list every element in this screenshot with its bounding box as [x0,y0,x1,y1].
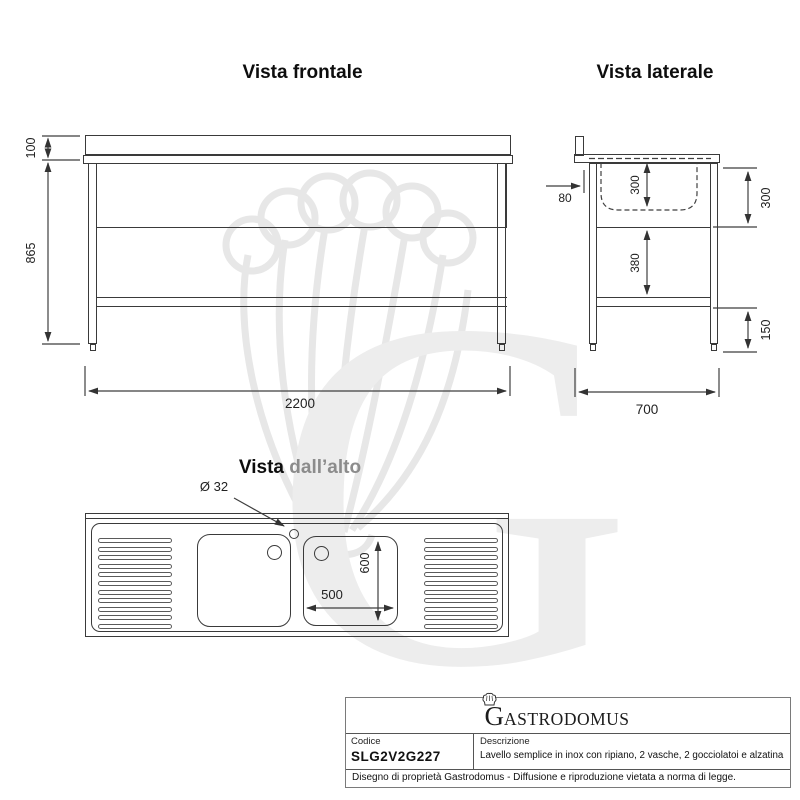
side-bottom-shelf [596,297,711,307]
front-apron-panel [96,163,507,228]
drainboard-groove [98,538,172,543]
right-drain-hole [314,546,329,561]
left-drain-hole [267,545,282,560]
drainboard-groove [424,555,498,560]
side-backsplash [575,136,584,156]
drainboard-groove [98,624,172,629]
top-view-title-suffix: dall’alto [289,457,361,478]
side-dim-upper-label: 300 [759,178,773,218]
drainboard-groove [424,538,498,543]
front-dim-width-label: 2200 [268,397,332,411]
tap-hole [289,529,299,539]
drainboard-groove [424,581,498,586]
drainboard-groove [424,598,498,603]
title-block: GASTRODOMUS Codice SLG2V2G227 Descrizion… [345,697,791,788]
top-dim-bowl-length-label: 600 [358,543,372,583]
code-label: Codice [351,736,473,747]
top-view-title: Vista dall’alto [210,457,390,479]
drainboard-groove [98,547,172,552]
description-cell: Descrizione Lavello semplice in inox con… [474,734,790,769]
drainboard-groove [424,624,498,629]
top-view-title-prefix: Vista [239,457,284,478]
gastrodomus-logo: GASTRODOMUS [484,703,629,730]
code-value: SLG2V2G227 [351,749,473,764]
chef-hat-icon [481,692,498,707]
drainboard-groove [98,572,172,577]
drainboard-groove [98,590,172,595]
front-backsplash [85,135,511,155]
watermark-chef-logo: G [0,0,800,800]
drainboard-groove [424,615,498,620]
left-drainboard-grooves [98,538,172,629]
front-left-foot [90,344,96,351]
drainboard-groove [98,615,172,620]
drainboard-groove [98,598,172,603]
technical-drawing-page: G Vista frontale 100 865 2200 Vista late… [0,0,800,800]
top-backsplash-edge-line [86,518,508,519]
drainboard-groove [98,555,172,560]
tap-hole-diameter-label: Ø 32 [192,480,236,494]
code-cell: Codice SLG2V2G227 [346,734,474,769]
drainboard-groove [424,547,498,552]
front-right-foot [499,344,505,351]
description-value: Lavello semplice in inox con ripiano, 2 … [480,750,790,761]
drainboard-groove [98,581,172,586]
side-dim-lower-label: 150 [759,310,773,350]
drainboard-groove [424,590,498,595]
side-right-leg [710,163,718,344]
front-dim-backsplash-label: 100 [24,128,38,168]
side-view-title: Vista laterale [570,62,740,84]
drainboard-groove [424,607,498,612]
logo-text: ASTRODOMUS [504,709,630,729]
drainboard-groove [424,572,498,577]
side-right-foot [711,344,717,351]
side-dim-bowl-depth-label: 300 [629,165,643,205]
side-dim-depth-label: 700 [615,403,679,417]
side-dim-mid-label: 380 [629,243,643,283]
description-label: Descrizione [480,736,790,747]
front-bottom-shelf [96,297,507,307]
front-dim-height-label: 865 [24,233,38,273]
drainboard-groove [98,607,172,612]
front-view-title: Vista frontale [215,62,390,84]
title-block-logo-row: GASTRODOMUS [346,698,790,734]
side-panel [596,163,711,228]
side-dim-splash-offset-label: 80 [552,191,578,205]
title-block-data-row: Codice SLG2V2G227 Descrizione Lavello se… [346,734,790,770]
title-block-footer: Disegno di proprietà Gastrodomus - Diffu… [346,770,790,789]
top-dim-bowl-width-label: 500 [310,588,354,602]
drainboard-groove [424,564,498,569]
side-worktop [574,154,720,163]
right-drainboard-grooves [424,538,498,629]
side-left-foot [590,344,596,351]
drainboard-groove [98,564,172,569]
